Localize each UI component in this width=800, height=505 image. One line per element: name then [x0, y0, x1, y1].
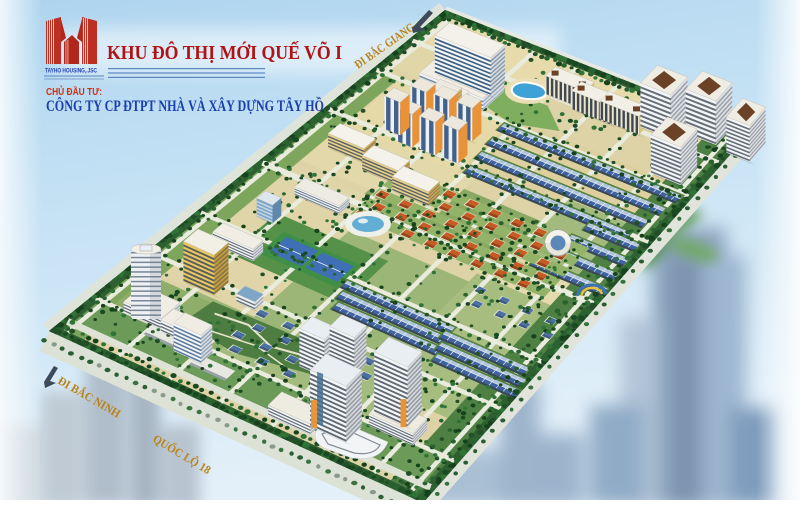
- svg-text:KHU ĐÔ THỊ MỚI QUẾ VÕ I: KHU ĐÔ THỊ MỚI QUẾ VÕ I: [107, 42, 342, 64]
- svg-text:CÔNG TY CP ĐTPT NHÀ VÀ XÂY DỰN: CÔNG TY CP ĐTPT NHÀ VÀ XÂY DỰNG TÂY HỒ: [46, 97, 324, 115]
- svg-text:TAYHO HOUSING,.JSC: TAYHO HOUSING,.JSC: [45, 68, 97, 75]
- svg-text:CHỦ ĐẦU TƯ:: CHỦ ĐẦU TƯ:: [46, 85, 102, 98]
